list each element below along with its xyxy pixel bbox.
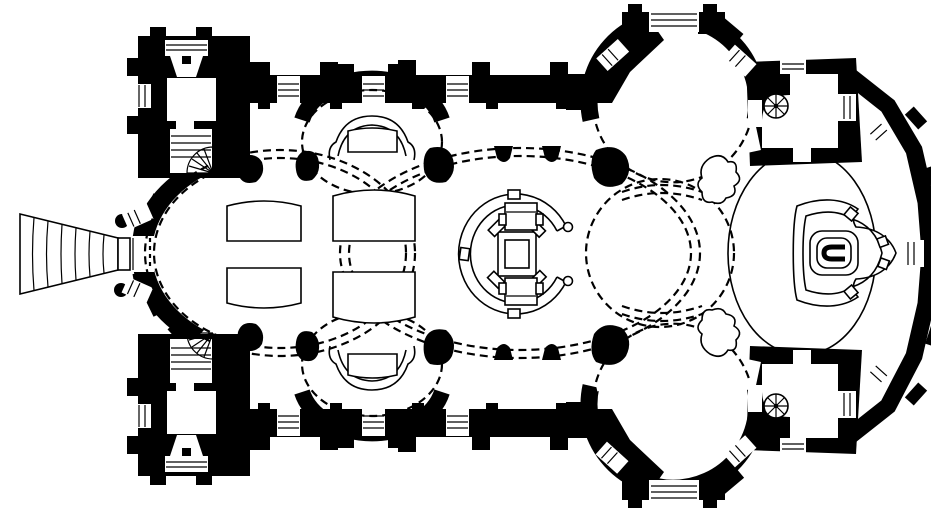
spiral-stair: [764, 94, 788, 118]
shrine-mensa-south: [499, 278, 543, 305]
south-chapel-altar: [329, 346, 415, 390]
floor-plan-drawing: [0, 0, 931, 512]
church-floor-plan: [0, 0, 931, 512]
high-altar: [810, 231, 858, 275]
tower-room: [167, 78, 216, 121]
scalloped-pier: [698, 156, 740, 204]
east-niche: [902, 240, 924, 267]
transverse-arch: [622, 306, 702, 313]
central-shrine-altar: [459, 190, 573, 318]
high-altar-platform: [793, 200, 896, 306]
shrine-mensa-north: [499, 203, 543, 230]
pew-blocks: [227, 190, 415, 323]
north-chapel-altar: [329, 116, 415, 160]
exterior-steps: [165, 40, 208, 56]
scalloped-pier: [698, 309, 740, 357]
entrance-stair-fan: [20, 214, 130, 294]
splayed-window: [133, 84, 151, 108]
spiral-stair: [764, 394, 788, 418]
